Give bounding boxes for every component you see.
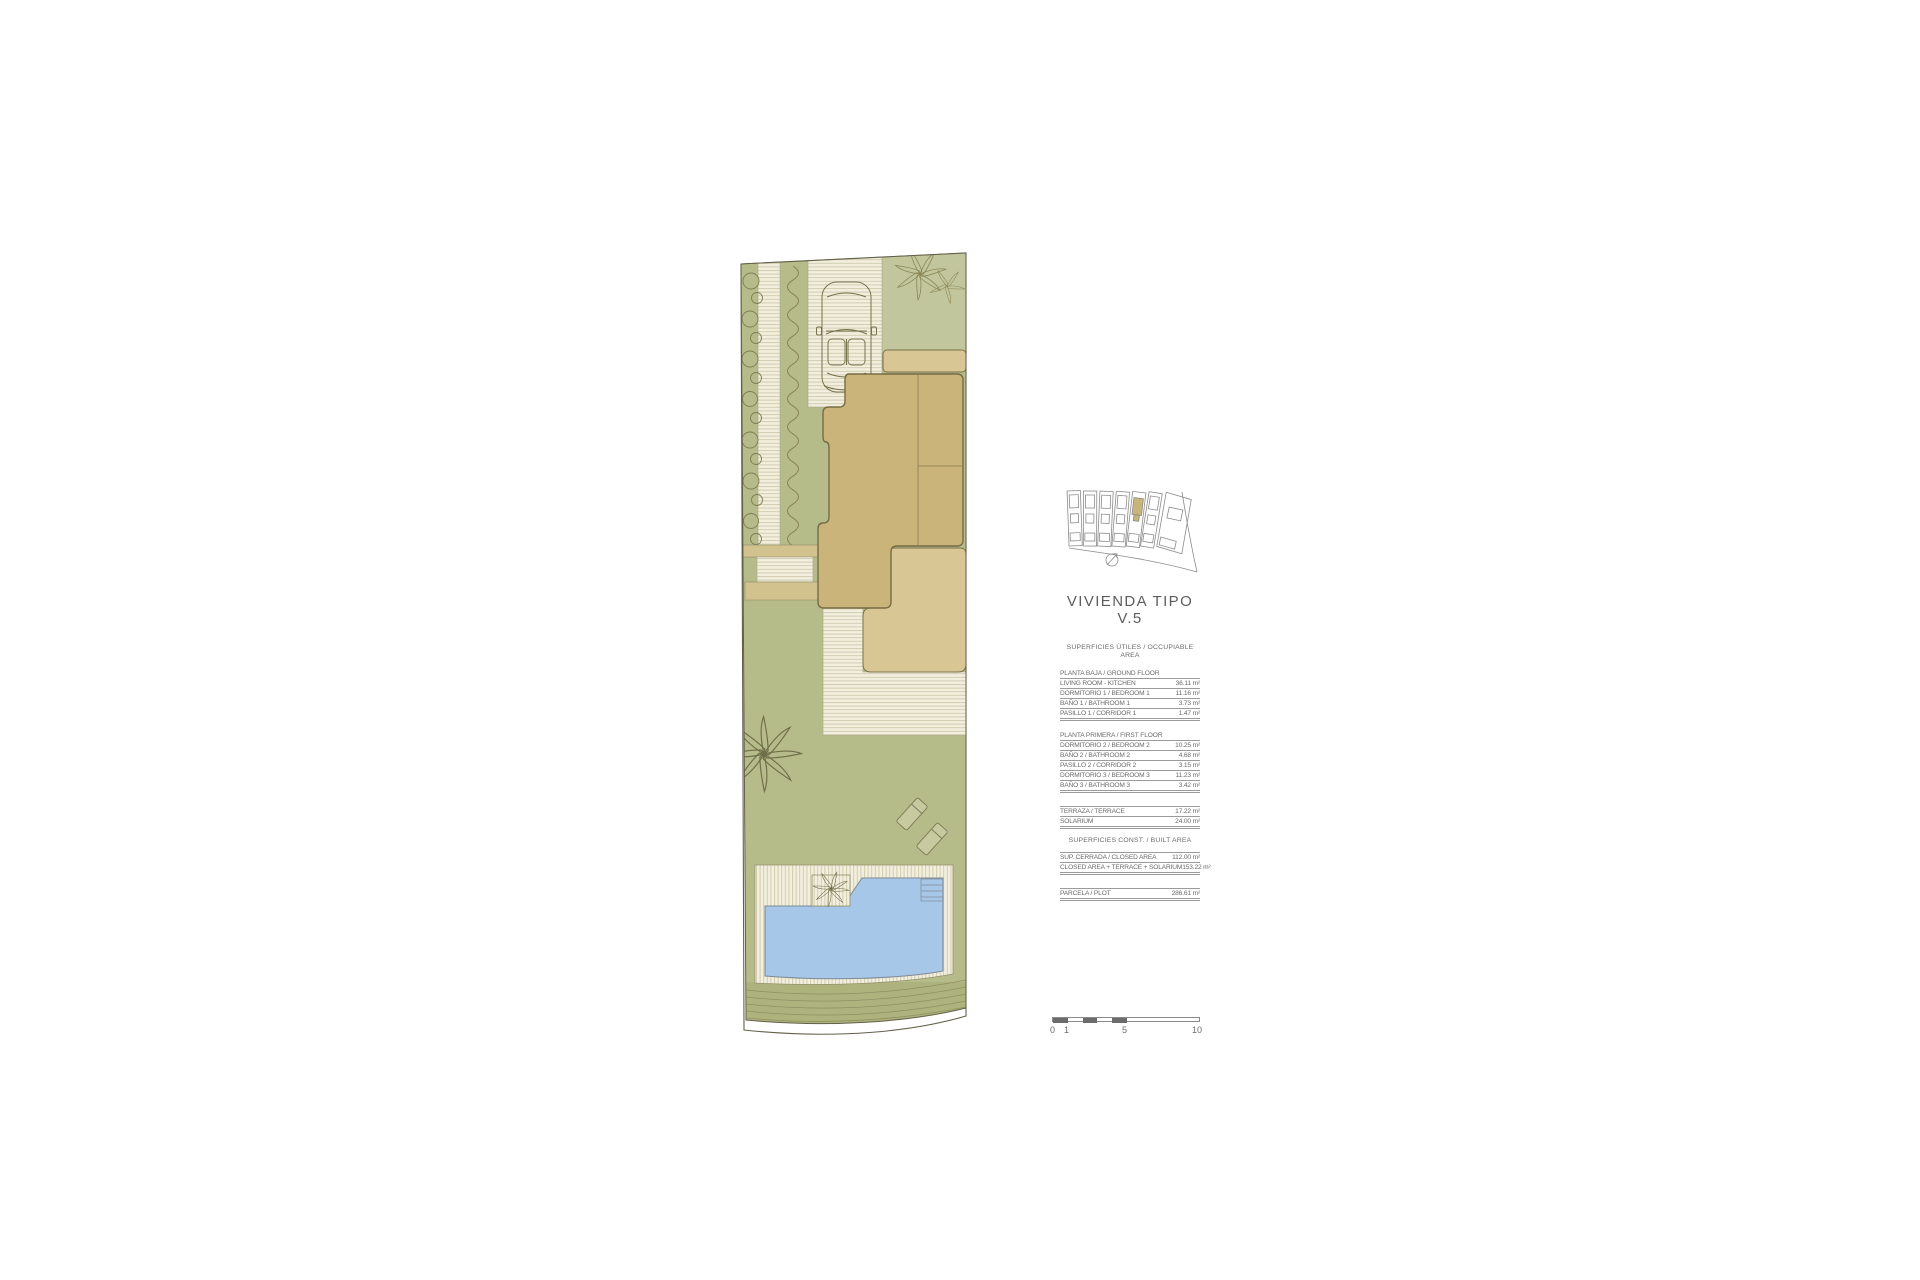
area-group-header: PLANTA BAJA / GROUND FLOOR [1060, 669, 1200, 679]
area-row: PARCELA / PLOT286.61 m² [1060, 888, 1200, 899]
scale-bar: 0 1 5 10 [1052, 1017, 1212, 1051]
area-row-label: TERRAZA / TERRACE [1060, 807, 1125, 816]
area-row: BAÑO 1 / BATHROOM 13.73 m² [1060, 699, 1200, 709]
area-row-label: DORMITORIO 2 / BEDROOM 2 [1060, 741, 1150, 750]
area-row-label: SOLARIUM [1060, 817, 1093, 826]
area-row-value: 11.16 m² [1176, 689, 1200, 698]
area-row: PASILLO 2 / CORRIDOR 23.15 m² [1060, 761, 1200, 771]
area-row: TERRAZA / TERRACE17.22 m² [1060, 806, 1200, 817]
area-group-built: SUP. CERRADA / CLOSED AREA112.00 m²CLOSE… [1060, 852, 1200, 875]
entry-porch [883, 350, 966, 372]
area-row-value: 36.11 m² [1176, 679, 1200, 688]
area-group-first-floor: PLANTA PRIMERA / FIRST FLOOR DORMITORIO … [1060, 731, 1200, 793]
area-row-value: 10.25 m² [1175, 741, 1200, 750]
area-row: SUP. CERRADA / CLOSED AREA112.00 m² [1060, 852, 1200, 863]
scale-label: 5 [1122, 1025, 1127, 1035]
area-row-label: LIVING ROOM - KITCHEN [1060, 679, 1136, 688]
page-subtitle: V.5 [1060, 610, 1200, 627]
drawing-sheet: VIVIENDA TIPO V.5 SUPERFICIES ÚTILES / O… [0, 0, 1920, 1280]
area-row: LIVING ROOM - KITCHEN36.11 m² [1060, 679, 1200, 689]
minimap-unit [1067, 491, 1082, 546]
area-row: DORMITORIO 3 / BEDROOM 311.23 m² [1060, 771, 1200, 781]
area-group-plot: PARCELA / PLOT286.61 m² [1060, 888, 1200, 901]
pool-planter [812, 872, 850, 907]
area-group-header: PLANTA PRIMERA / FIRST FLOOR [1060, 731, 1200, 741]
area-row-label: SUP. CERRADA / CLOSED AREA [1060, 853, 1156, 862]
scale-label: 10 [1192, 1025, 1202, 1035]
area-row-value: 112.00 m² [1172, 853, 1200, 862]
area-row-label: DORMITORIO 3 / BEDROOM 3 [1060, 771, 1150, 780]
area-row: CLOSED AREA + TERRACE + SOLARIUM153.22 m… [1060, 863, 1200, 873]
area-row-value: 4.68 m² [1179, 751, 1200, 760]
page-title: VIVIENDA TIPO [1060, 593, 1200, 610]
info-panel: VIVIENDA TIPO V.5 SUPERFICIES ÚTILES / O… [1060, 593, 1200, 901]
minimap-unit [1098, 491, 1114, 547]
area-row: DORMITORIO 1 / BEDROOM 111.16 m² [1060, 689, 1200, 699]
area-row-label: CLOSED AREA + TERRACE + SOLARIUM [1060, 863, 1182, 872]
area-row-value: 3.42 m² [1179, 781, 1200, 790]
area-row: PASILLO 1 / CORRIDOR 11.47 m² [1060, 709, 1200, 719]
scale-label: 0 [1050, 1025, 1055, 1035]
area-row: BAÑO 3 / BATHROOM 33.42 m² [1060, 781, 1200, 791]
area-group-ground-floor: PLANTA BAJA / GROUND FLOOR LIVING ROOM -… [1060, 669, 1200, 721]
area-row-label: BAÑO 3 / BATHROOM 3 [1060, 781, 1130, 790]
area-row-label: BAÑO 2 / BATHROOM 2 [1060, 751, 1130, 760]
minimap-unit [1141, 492, 1163, 548]
area-row-value: 24.00 m² [1175, 817, 1200, 826]
area-row-label: PARCELA / PLOT [1060, 889, 1111, 898]
area-row-value: 3.73 m² [1179, 699, 1200, 708]
front-lawn [882, 248, 970, 352]
minimap-unit [1083, 491, 1096, 546]
area-group-outdoor: TERRAZA / TERRACE17.22 m²SOLARIUM24.00 m… [1060, 806, 1200, 829]
compass-icon [1106, 554, 1118, 567]
built-area-header: SUPERFICIES CONST. / BUILT AREA [1060, 837, 1200, 845]
area-row-label: PASILLO 2 / CORRIDOR 2 [1060, 761, 1136, 770]
minimap-unit [1154, 492, 1193, 554]
area-row: SOLARIUM24.00 m² [1060, 817, 1200, 827]
scale-bar-rule [1052, 1017, 1200, 1022]
area-row-value: 11.23 m² [1176, 771, 1200, 780]
area-row-value: 3.15 m² [1179, 761, 1200, 770]
area-row-label: PASILLO 1 / CORRIDOR 1 [1060, 709, 1136, 718]
area-row: BAÑO 2 / BATHROOM 24.68 m² [1060, 751, 1200, 761]
scale-label: 1 [1064, 1025, 1069, 1035]
area-row-value: 17.22 m² [1175, 807, 1200, 816]
area-row-label: DORMITORIO 1 / BEDROOM 1 [1060, 689, 1150, 698]
occupiable-area-header: SUPERFICIES ÚTILES / OCCUPIABLE AREA [1060, 644, 1200, 660]
area-row: DORMITORIO 2 / BEDROOM 210.25 m² [1060, 741, 1200, 751]
area-row-label: BAÑO 1 / BATHROOM 1 [1060, 699, 1130, 708]
area-row-value: 153.22 m² [1182, 863, 1210, 872]
area-row-value: 1.47 m² [1179, 709, 1200, 718]
area-row-value: 286.61 m² [1172, 889, 1200, 898]
side-walkway [758, 250, 780, 560]
site-plan [735, 245, 1007, 1075]
location-minimap [1050, 478, 1220, 578]
